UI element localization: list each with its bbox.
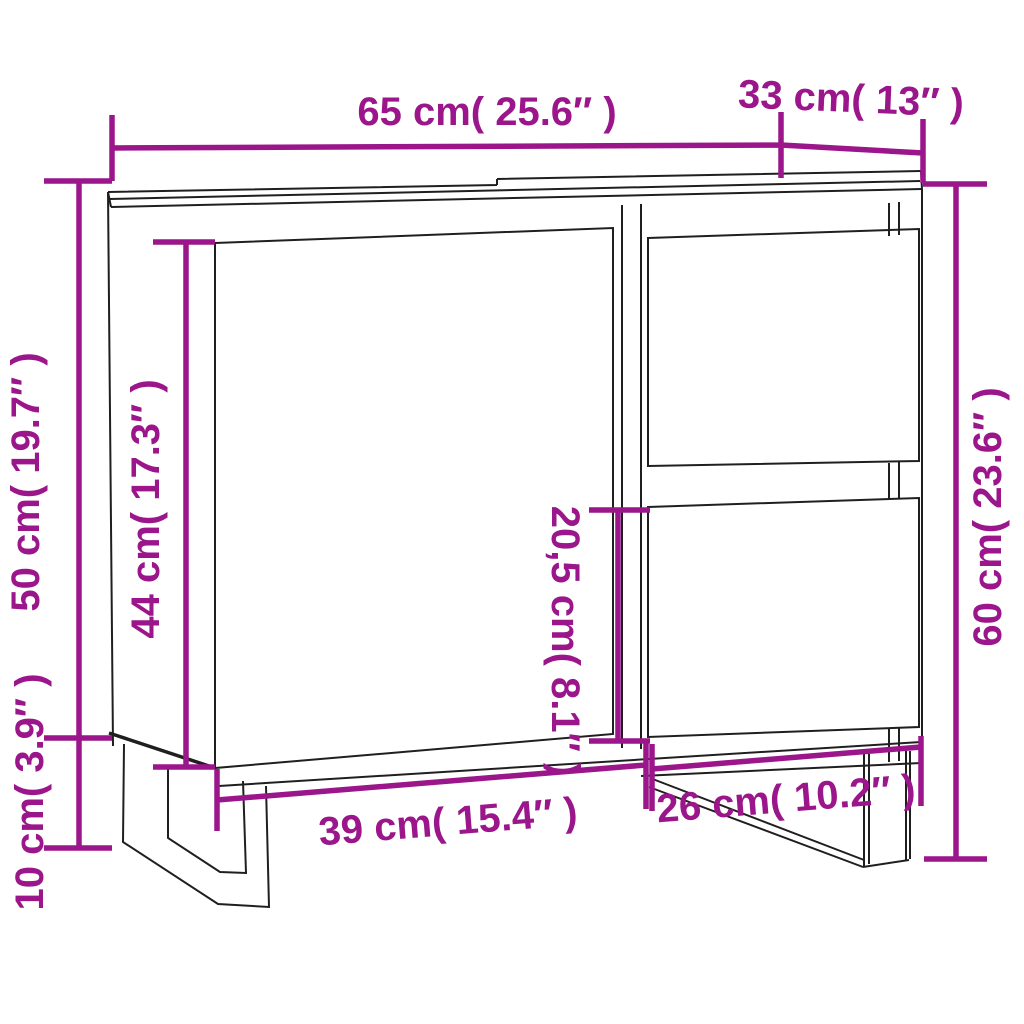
dimension-label-leg-height: 10 cm( 3.9″ ): [10, 673, 50, 910]
dimension-label-left-height-upper: 50 cm( 19.7″ ): [6, 352, 46, 611]
dimension-label-right-height: 60 cm( 23.6″ ): [968, 387, 1008, 646]
dimension-diagram: 65 cm( 25.6″ ) 33 cm( 13″ ) 50 cm( 19.7″…: [0, 0, 1024, 1024]
dimension-label-drawer-height: 20,5 cm( 8.1″ ): [545, 506, 585, 776]
dimension-label-door-height: 44 cm( 17.3″ ): [126, 379, 166, 638]
dimension-label-top-width: 65 cm( 25.6″ ): [357, 92, 616, 132]
cabinet-outline: [108, 171, 922, 786]
dimension-label-top-depth: 33 cm( 13″ ): [737, 74, 964, 123]
